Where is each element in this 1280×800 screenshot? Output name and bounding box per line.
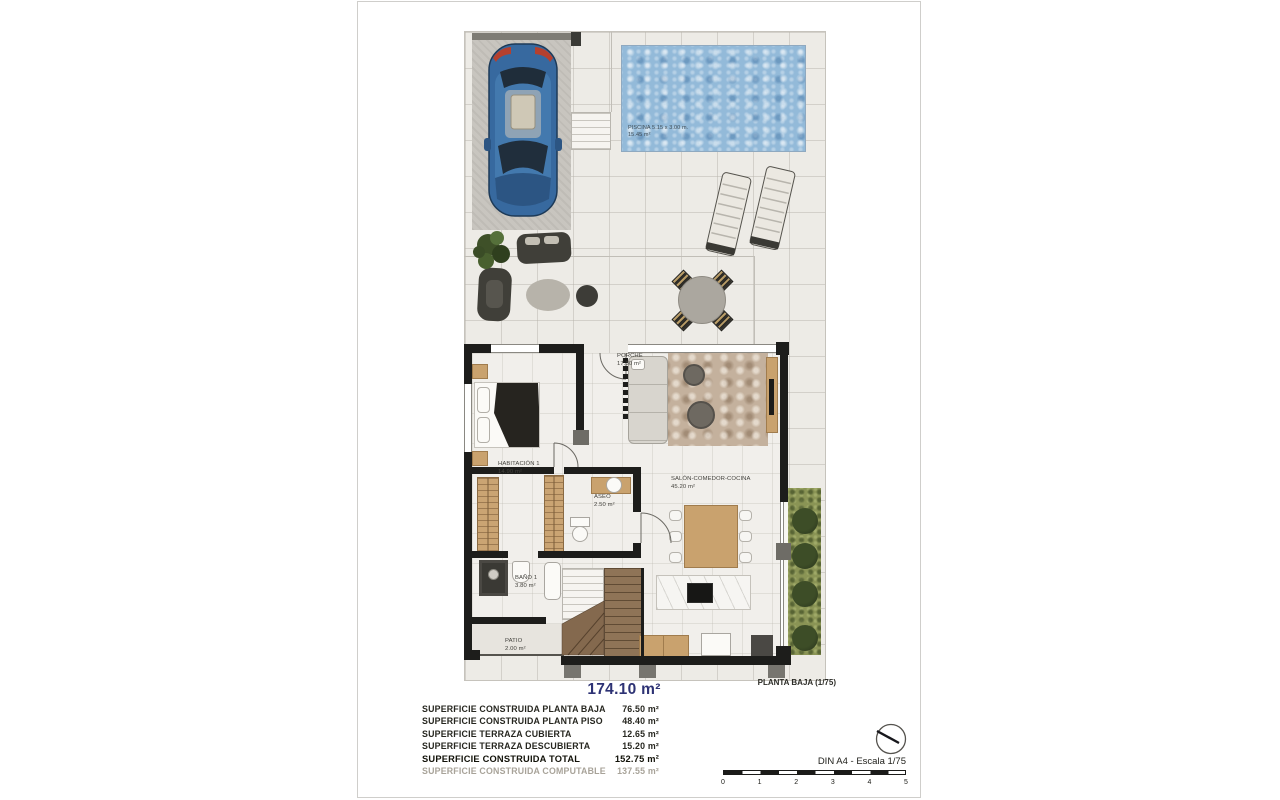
- window-glass-front: [628, 344, 776, 353]
- chaise-cushion: [486, 280, 503, 308]
- habitacion-label: HABITACIÓN 1 14.90 m²: [498, 461, 540, 477]
- pillow: [477, 387, 490, 413]
- patio-label: PATIO 2.00 m²: [505, 638, 526, 654]
- pool-label: PISCINA 5.15 x 3.00 m. 15.45 m²: [628, 125, 688, 140]
- boundary-block: [571, 32, 581, 46]
- dining-chair: [739, 531, 752, 542]
- kitchen-appliance: [751, 635, 773, 656]
- dining-chair: [739, 510, 752, 521]
- total-area-headline: 174.10 m²: [529, 681, 719, 699]
- wall-segment: [576, 344, 584, 432]
- wall-pillar: [564, 665, 581, 678]
- scale-tick: 0: [713, 778, 733, 787]
- bath-sink: [544, 562, 561, 600]
- coffee-table: [526, 279, 570, 311]
- wall-segment: [464, 344, 472, 384]
- wall-pillar: [776, 543, 791, 560]
- window: [464, 384, 472, 452]
- summary-row-computable: SUPERFICIE CONSTRUIDA COMPUTABLE137.55 m…: [422, 765, 659, 777]
- screenshot-canvas: PISCINA 5.15 x 3.00 m. 15.45 m² PORCHE 1…: [0, 0, 1280, 800]
- pool-name: PISCINA 5.15 x 3.00 m.: [628, 125, 688, 132]
- folding-door-dash: [623, 414, 628, 419]
- wall-segment: [464, 551, 508, 558]
- aseo-label: ASEO 2.50 m²: [594, 494, 615, 510]
- scale-bar: [723, 770, 906, 775]
- nightstand: [472, 364, 488, 379]
- plan-sheet: PISCINA 5.15 x 3.00 m. 15.45 m² PORCHE 1…: [357, 1, 921, 798]
- wardrobe: [477, 477, 499, 555]
- living-rug: [668, 351, 768, 446]
- outdoor-stool: [576, 285, 598, 307]
- pool-area: 15.45 m²: [628, 132, 688, 139]
- north-indicator-icon: [877, 725, 906, 754]
- toilet-bowl: [572, 526, 588, 542]
- garage-top-wall: [472, 33, 571, 40]
- folding-door-dash: [623, 406, 628, 411]
- summary-row: SUPERFICIE TERRAZA CUBIERTA12.65 m²: [422, 728, 659, 740]
- summary-row-total: SUPERFICIE CONSTRUIDA TOTAL152.75 m²: [422, 753, 659, 765]
- scale-note: DIN A4 - Escala 1/75: [758, 756, 906, 768]
- scale-tick: 5: [896, 778, 916, 787]
- tv: [769, 379, 774, 415]
- exterior-stairs: [571, 112, 611, 150]
- wall-segment: [564, 551, 641, 558]
- folding-door-dash: [623, 398, 628, 403]
- sofa-cushion: [544, 236, 559, 244]
- wardrobe: [544, 475, 564, 557]
- deck-divider-line: [611, 32, 612, 112]
- wall-segment: [633, 467, 641, 512]
- wall-corner: [464, 650, 480, 660]
- wall-segment: [538, 551, 564, 558]
- wall-pillar: [639, 665, 656, 678]
- dining-table: [684, 505, 738, 568]
- plan-title: PLANTA BAJA (1/75): [718, 678, 836, 688]
- shower-head: [488, 569, 499, 580]
- wall-segment: [464, 617, 546, 624]
- porch-boundary-line: [464, 256, 754, 257]
- pouf: [687, 401, 715, 429]
- wall-pillar: [573, 430, 589, 445]
- wall-segment: [780, 344, 788, 502]
- garage-pad: [472, 33, 571, 230]
- folding-door-dash: [623, 390, 628, 395]
- stairs-upper-outline: [562, 568, 604, 620]
- bush: [792, 543, 818, 569]
- wall-segment: [641, 568, 644, 656]
- sofa-cushion: [525, 237, 540, 245]
- summary-row: SUPERFICIE TERRAZA DESCUBIERTA15.20 m²: [422, 740, 659, 752]
- summary-row: SUPERFICIE CONSTRUIDA PLANTA PISO48.40 m…: [422, 715, 659, 727]
- scale-tick: 2: [786, 778, 806, 787]
- summary-row: SUPERFICIE CONSTRUIDA PLANTA BAJA76.50 m…: [422, 703, 659, 715]
- dining-chair: [669, 531, 682, 542]
- wall-segment: [561, 656, 788, 665]
- cooktop: [687, 583, 713, 603]
- bush: [792, 625, 818, 651]
- kitchen-sink-unit: [701, 633, 731, 656]
- bano-label: BAÑO 1 3.80 m²: [515, 575, 537, 591]
- porch-boundary-line-v: [754, 256, 755, 345]
- salon-label: SALÓN-COMEDOR-COCINA 45.20 m²: [671, 476, 751, 492]
- stairs-wood: [604, 568, 641, 656]
- porche-label: PORCHE 17.30 m²: [617, 353, 643, 369]
- patio-table: [678, 276, 726, 324]
- scale-tick: 3: [823, 778, 843, 787]
- dining-chair: [669, 510, 682, 521]
- washbasin: [606, 477, 622, 493]
- wall-pillar: [768, 665, 785, 678]
- dining-chair: [739, 552, 752, 563]
- kitchen-counter: [639, 635, 689, 658]
- window-glass-side: [780, 502, 784, 648]
- folding-door-dash: [623, 382, 628, 387]
- counter-divider: [663, 635, 664, 658]
- scale-tick: 1: [750, 778, 770, 787]
- folding-door-dash: [623, 374, 628, 379]
- nightstand: [472, 451, 488, 466]
- bush: [792, 508, 818, 534]
- surface-summary-table: SUPERFICIE CONSTRUIDA PLANTA BAJA76.50 m…: [422, 703, 659, 778]
- pouf: [683, 364, 705, 386]
- bush: [792, 581, 818, 607]
- wall-segment: [564, 467, 641, 474]
- dining-chair: [669, 552, 682, 563]
- window: [491, 344, 539, 353]
- pillow: [477, 417, 490, 443]
- scale-tick: 4: [859, 778, 879, 787]
